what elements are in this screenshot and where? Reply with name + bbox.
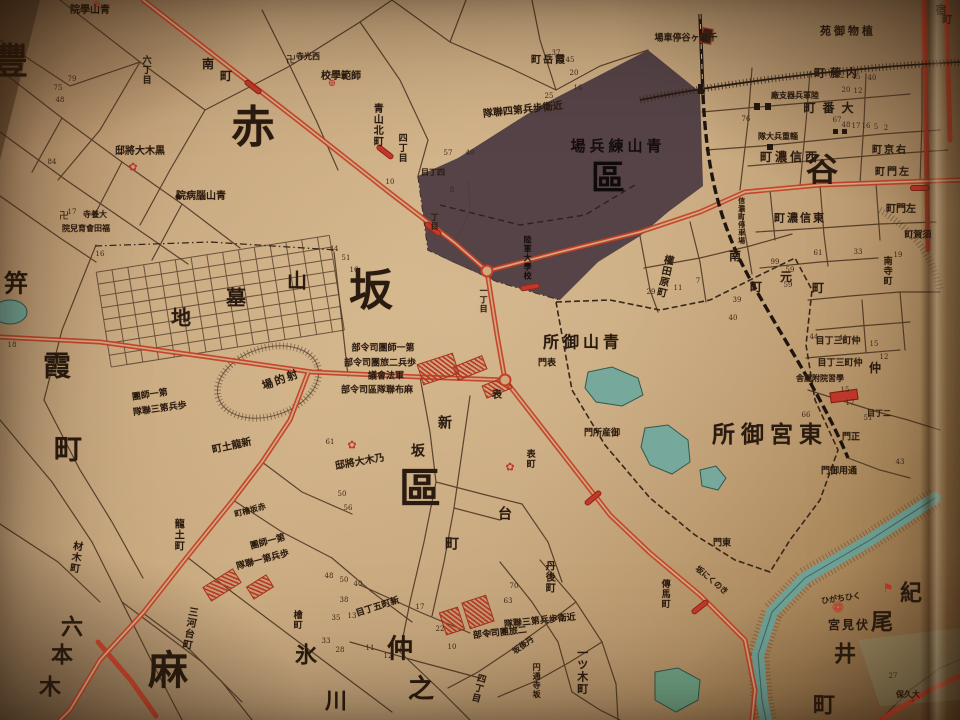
map-label: 寺光西 (296, 52, 320, 60)
lot-number: 48 (56, 96, 65, 104)
map-label: 陸軍大學校 (524, 236, 532, 281)
lot-number: 61 (814, 249, 823, 257)
map-label: 場兵練山青 (570, 139, 665, 155)
vintage-tokyo-map-photo: 卍卍✿✿✿⊕⊕●⚑❁ 豐赤坂區區谷麻霞町笄氷川仲之紀尾井町山墓地六本木台町新坂南… (0, 0, 960, 720)
lot-number: 63 (504, 597, 513, 605)
map-label: 木 (39, 677, 61, 700)
fold-red-road (924, 0, 928, 250)
residence-blossom-icon: ✿ (347, 440, 356, 451)
lot-number: 15 (841, 386, 850, 394)
lot-number: 48 (842, 121, 851, 129)
lot-number: 16 (350, 266, 359, 274)
lot-number: 48 (325, 572, 334, 580)
lot-number: 49 (466, 149, 475, 157)
lot-number: 11 (674, 284, 683, 292)
lot-number: 20 (842, 86, 851, 94)
lot-number: 40 (354, 580, 363, 588)
lot-number: 50 (338, 490, 347, 498)
lot-number: 33 (854, 248, 863, 256)
map-label: 六 (61, 617, 83, 640)
lot-number: 16 (574, 84, 583, 92)
map-label: 町濃信東 (774, 212, 826, 223)
map-label: 霞 (43, 351, 71, 380)
map-label: 目丁四 (421, 168, 445, 176)
tram-stop-icon (910, 185, 930, 191)
map-label: 區 (591, 161, 625, 196)
lot-number: 59 (786, 266, 795, 274)
map-label: 円通寺坂 (533, 663, 541, 699)
map-label: 井 (834, 644, 856, 667)
lot-number: 41 (839, 334, 848, 342)
lot-number: 12 (854, 87, 863, 95)
pond (655, 668, 700, 712)
lot-number: 44 (810, 333, 819, 341)
lot-number: 10 (386, 178, 395, 186)
lot-number: 5 (874, 123, 878, 131)
lot-number: 18 (8, 341, 17, 349)
lot-number: 10 (448, 643, 457, 651)
lot-number: 33 (322, 637, 331, 645)
lot-number: 7 (696, 277, 700, 285)
map-label: 校學範師 (321, 72, 361, 82)
map-label: 尾 (871, 612, 893, 635)
map-label: 目丁三町仲 (817, 359, 862, 368)
map-label: 丁目 (431, 213, 439, 231)
lot-number: 76 (742, 115, 751, 123)
lot-number: 37 (552, 49, 561, 57)
map-label: 町 (813, 695, 835, 718)
map-label: 門正 (842, 433, 860, 442)
map-label: 笄 (4, 272, 28, 297)
map-label: 之 (408, 676, 434, 703)
lot-number: 15 (870, 340, 879, 348)
map-label: 新 (438, 417, 452, 432)
map-label: 宮見伏 (828, 619, 870, 631)
flag-icon: ⚑ (883, 582, 894, 594)
map-label: 表町 (524, 449, 533, 469)
lot-number: 17 (846, 399, 855, 407)
map-label: 町岳霞 (531, 56, 567, 66)
lot-number: 12 (880, 353, 889, 361)
map-label: 門御用通 (821, 467, 857, 476)
map-label: 保久大 (896, 690, 920, 698)
lot-number: 70 (510, 582, 519, 590)
map-label: 苑御物植 (820, 25, 876, 36)
residence-blossom-icon: ✿ (505, 462, 514, 473)
map-label: 南寺町 (881, 256, 890, 286)
residence-blossom-icon: ✿ (128, 162, 137, 173)
lot-number: 56 (344, 504, 353, 512)
map-label: 四丁目 (396, 133, 405, 163)
junction-circle-icon (481, 265, 494, 278)
map-label: 部令司團師一第 (351, 344, 414, 353)
lot-number: 79 (68, 75, 77, 83)
map-label: 町門左 (875, 168, 911, 178)
lot-number: 75 (54, 84, 63, 92)
map-label: 町 (220, 70, 232, 82)
map-label: 傳馬町 (659, 579, 668, 609)
lot-number: 29 (647, 288, 656, 296)
lot-number: 57 (444, 149, 453, 157)
map-label: 町 (54, 434, 82, 463)
map-label: 紀 (900, 583, 922, 606)
map-label: 一丁目 (480, 287, 488, 314)
lot-number: 17 (852, 122, 861, 130)
lot-number: 8 (450, 186, 454, 194)
lot-number: 27 (889, 672, 898, 680)
lot-number: 51 (342, 254, 351, 262)
map-label: 町濃信西 (760, 151, 820, 163)
lot-number: 59 (784, 281, 793, 289)
lot-number: 44 (330, 245, 339, 253)
map-label: 町京右 (872, 146, 908, 156)
lot-number: 25 (545, 92, 554, 100)
map-label: 町賀須 (904, 231, 931, 240)
lot-number: 11 (366, 644, 375, 652)
map-label: 所御宮東 (712, 423, 828, 447)
map-label: 町 (812, 282, 824, 294)
map-label: 坂 (349, 268, 393, 314)
lot-number: 17 (416, 603, 425, 611)
lot-number: 50 (340, 576, 349, 584)
lot-number: 2 (884, 124, 888, 132)
map-label: 氷 (295, 645, 317, 668)
map-label: 台 (498, 508, 512, 523)
map-label: 場車停谷ヶ駄千 (654, 34, 717, 43)
map-label: 南 (202, 58, 214, 70)
map-label: 町 (750, 281, 762, 293)
map-label: 門表 (538, 359, 556, 368)
temple-manji-icon: 卍 (286, 56, 296, 66)
map-label: 赤 (231, 105, 275, 151)
map-label: 一ツ木町 (576, 647, 587, 695)
lot-number: 16 (96, 250, 105, 258)
map-label: 信濃町停車場 (738, 197, 745, 245)
lot-number: 45 (852, 73, 861, 81)
pond (0, 300, 27, 324)
junction-circle-icon (499, 374, 512, 387)
pond (585, 367, 643, 406)
map-label: 隊大兵重輜 (758, 132, 798, 140)
map-label: 院學山青 (70, 6, 110, 16)
lot-number: 38 (340, 596, 349, 604)
map-label: 青山北町 (371, 103, 381, 147)
map-label: 麻 (148, 650, 188, 692)
lot-number: 51 (864, 414, 873, 422)
map-label: 部令司區隊聯布麻 (341, 386, 413, 395)
lot-number: 82 (836, 72, 845, 80)
map-label: 南 (729, 250, 741, 262)
lot-number: 45 (566, 56, 575, 64)
pond (641, 425, 690, 474)
lot-number: 40 (868, 74, 877, 82)
map-label: 本 (51, 645, 73, 668)
lot-number: 61 (326, 438, 335, 446)
lot-number: 28 (336, 646, 345, 654)
lot-number: 21 (484, 629, 493, 637)
map-label: 邸將大木黒 (115, 147, 165, 157)
lot-number: 12 (384, 652, 393, 660)
map-label: 所御山青 (543, 335, 623, 352)
map-label: 院兒育會田福 (62, 224, 110, 232)
lot-number: 19 (894, 251, 903, 259)
map-label: 檜町 (291, 610, 300, 630)
map-label: 町 (445, 538, 459, 553)
lot-number: 16 (862, 122, 871, 130)
map-label: 山 (287, 271, 307, 292)
map-label: 坂 (411, 445, 425, 460)
lot-number: 20 (570, 69, 579, 77)
lot-number: 39 (733, 296, 742, 304)
lot-number: 17 (68, 208, 77, 216)
map-label: 町門左 (886, 205, 916, 215)
map-label: 町 (942, 16, 952, 26)
map-label: 部令司團旅二兵歩 (344, 359, 416, 368)
map-label: 龍土町 (172, 519, 182, 552)
lot-number: 43 (896, 458, 905, 466)
map-label: 六丁目 (140, 55, 149, 85)
map-label: 地 (171, 308, 191, 329)
map-label: 川 (325, 691, 347, 714)
lot-number: 35 (332, 614, 341, 622)
map-label: 舎屬附院習學 (796, 374, 844, 382)
lot-number: 13 (348, 612, 357, 620)
lot-number: 99 (771, 258, 780, 266)
map-label: 門所産御 (584, 429, 620, 438)
map-label: 區 (399, 467, 441, 511)
lot-number: 66 (802, 411, 811, 419)
map-label: 議會法軍 (368, 372, 404, 381)
lot-number: 84 (48, 158, 57, 166)
map-label: 豐 (0, 43, 28, 80)
map-label: 仲 (869, 362, 881, 374)
map-label: 町番大 (803, 102, 860, 114)
lot-number: 40 (729, 314, 738, 322)
map-label: 門東 (713, 539, 731, 548)
pond (700, 466, 726, 490)
map-label: 廠支器兵軍陸 (771, 91, 819, 99)
map-label: 丹後町 (543, 561, 553, 594)
lot-number: 22 (436, 625, 445, 633)
lot-number: 67 (833, 116, 842, 124)
map-label: 寺養大 (83, 210, 107, 218)
map-label: 院病腦山青 (176, 192, 226, 202)
lot-number: 3 (910, 696, 914, 704)
map-label: 墓 (226, 288, 246, 309)
map-label: 表 (492, 391, 502, 401)
palace-grounds-boundary (556, 258, 838, 572)
